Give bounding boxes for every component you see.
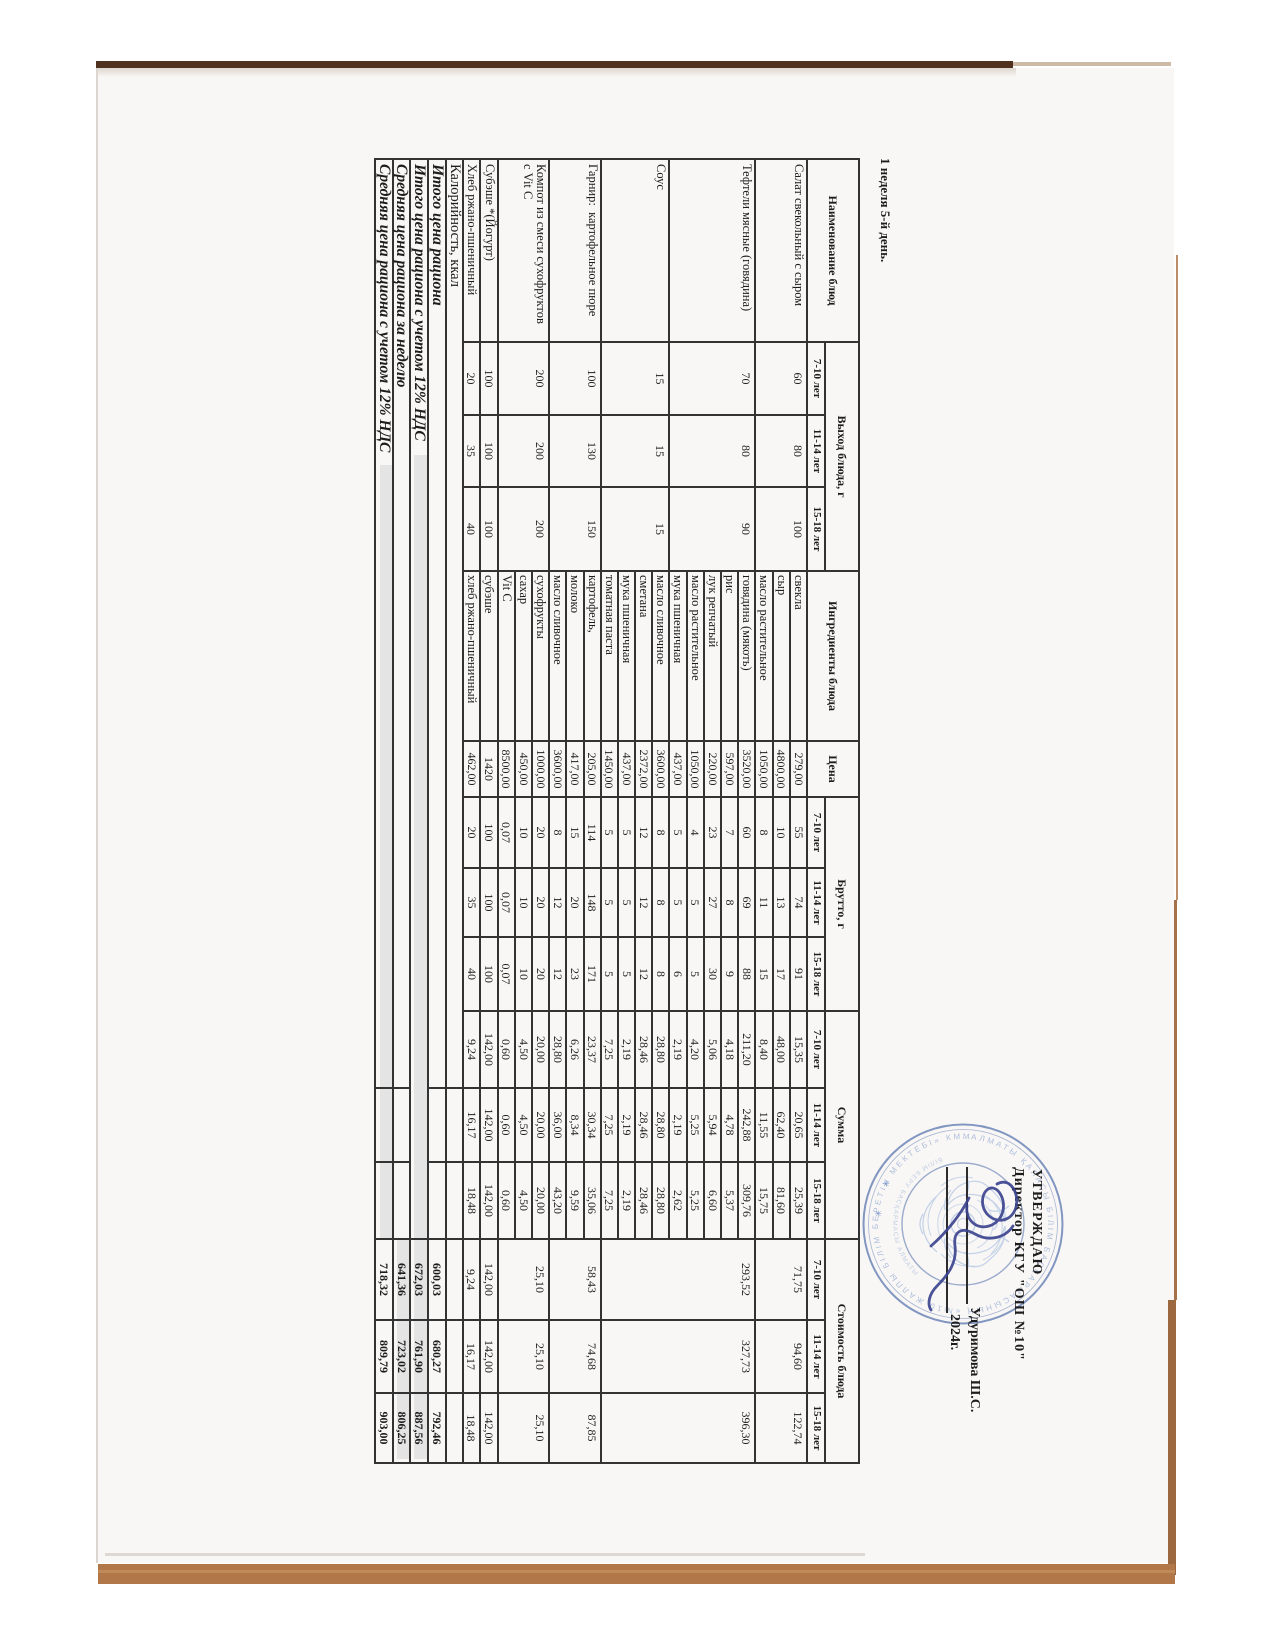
- svg-text:✳: ✳: [873, 1210, 883, 1218]
- svg-text:✳: ✳: [881, 1180, 891, 1188]
